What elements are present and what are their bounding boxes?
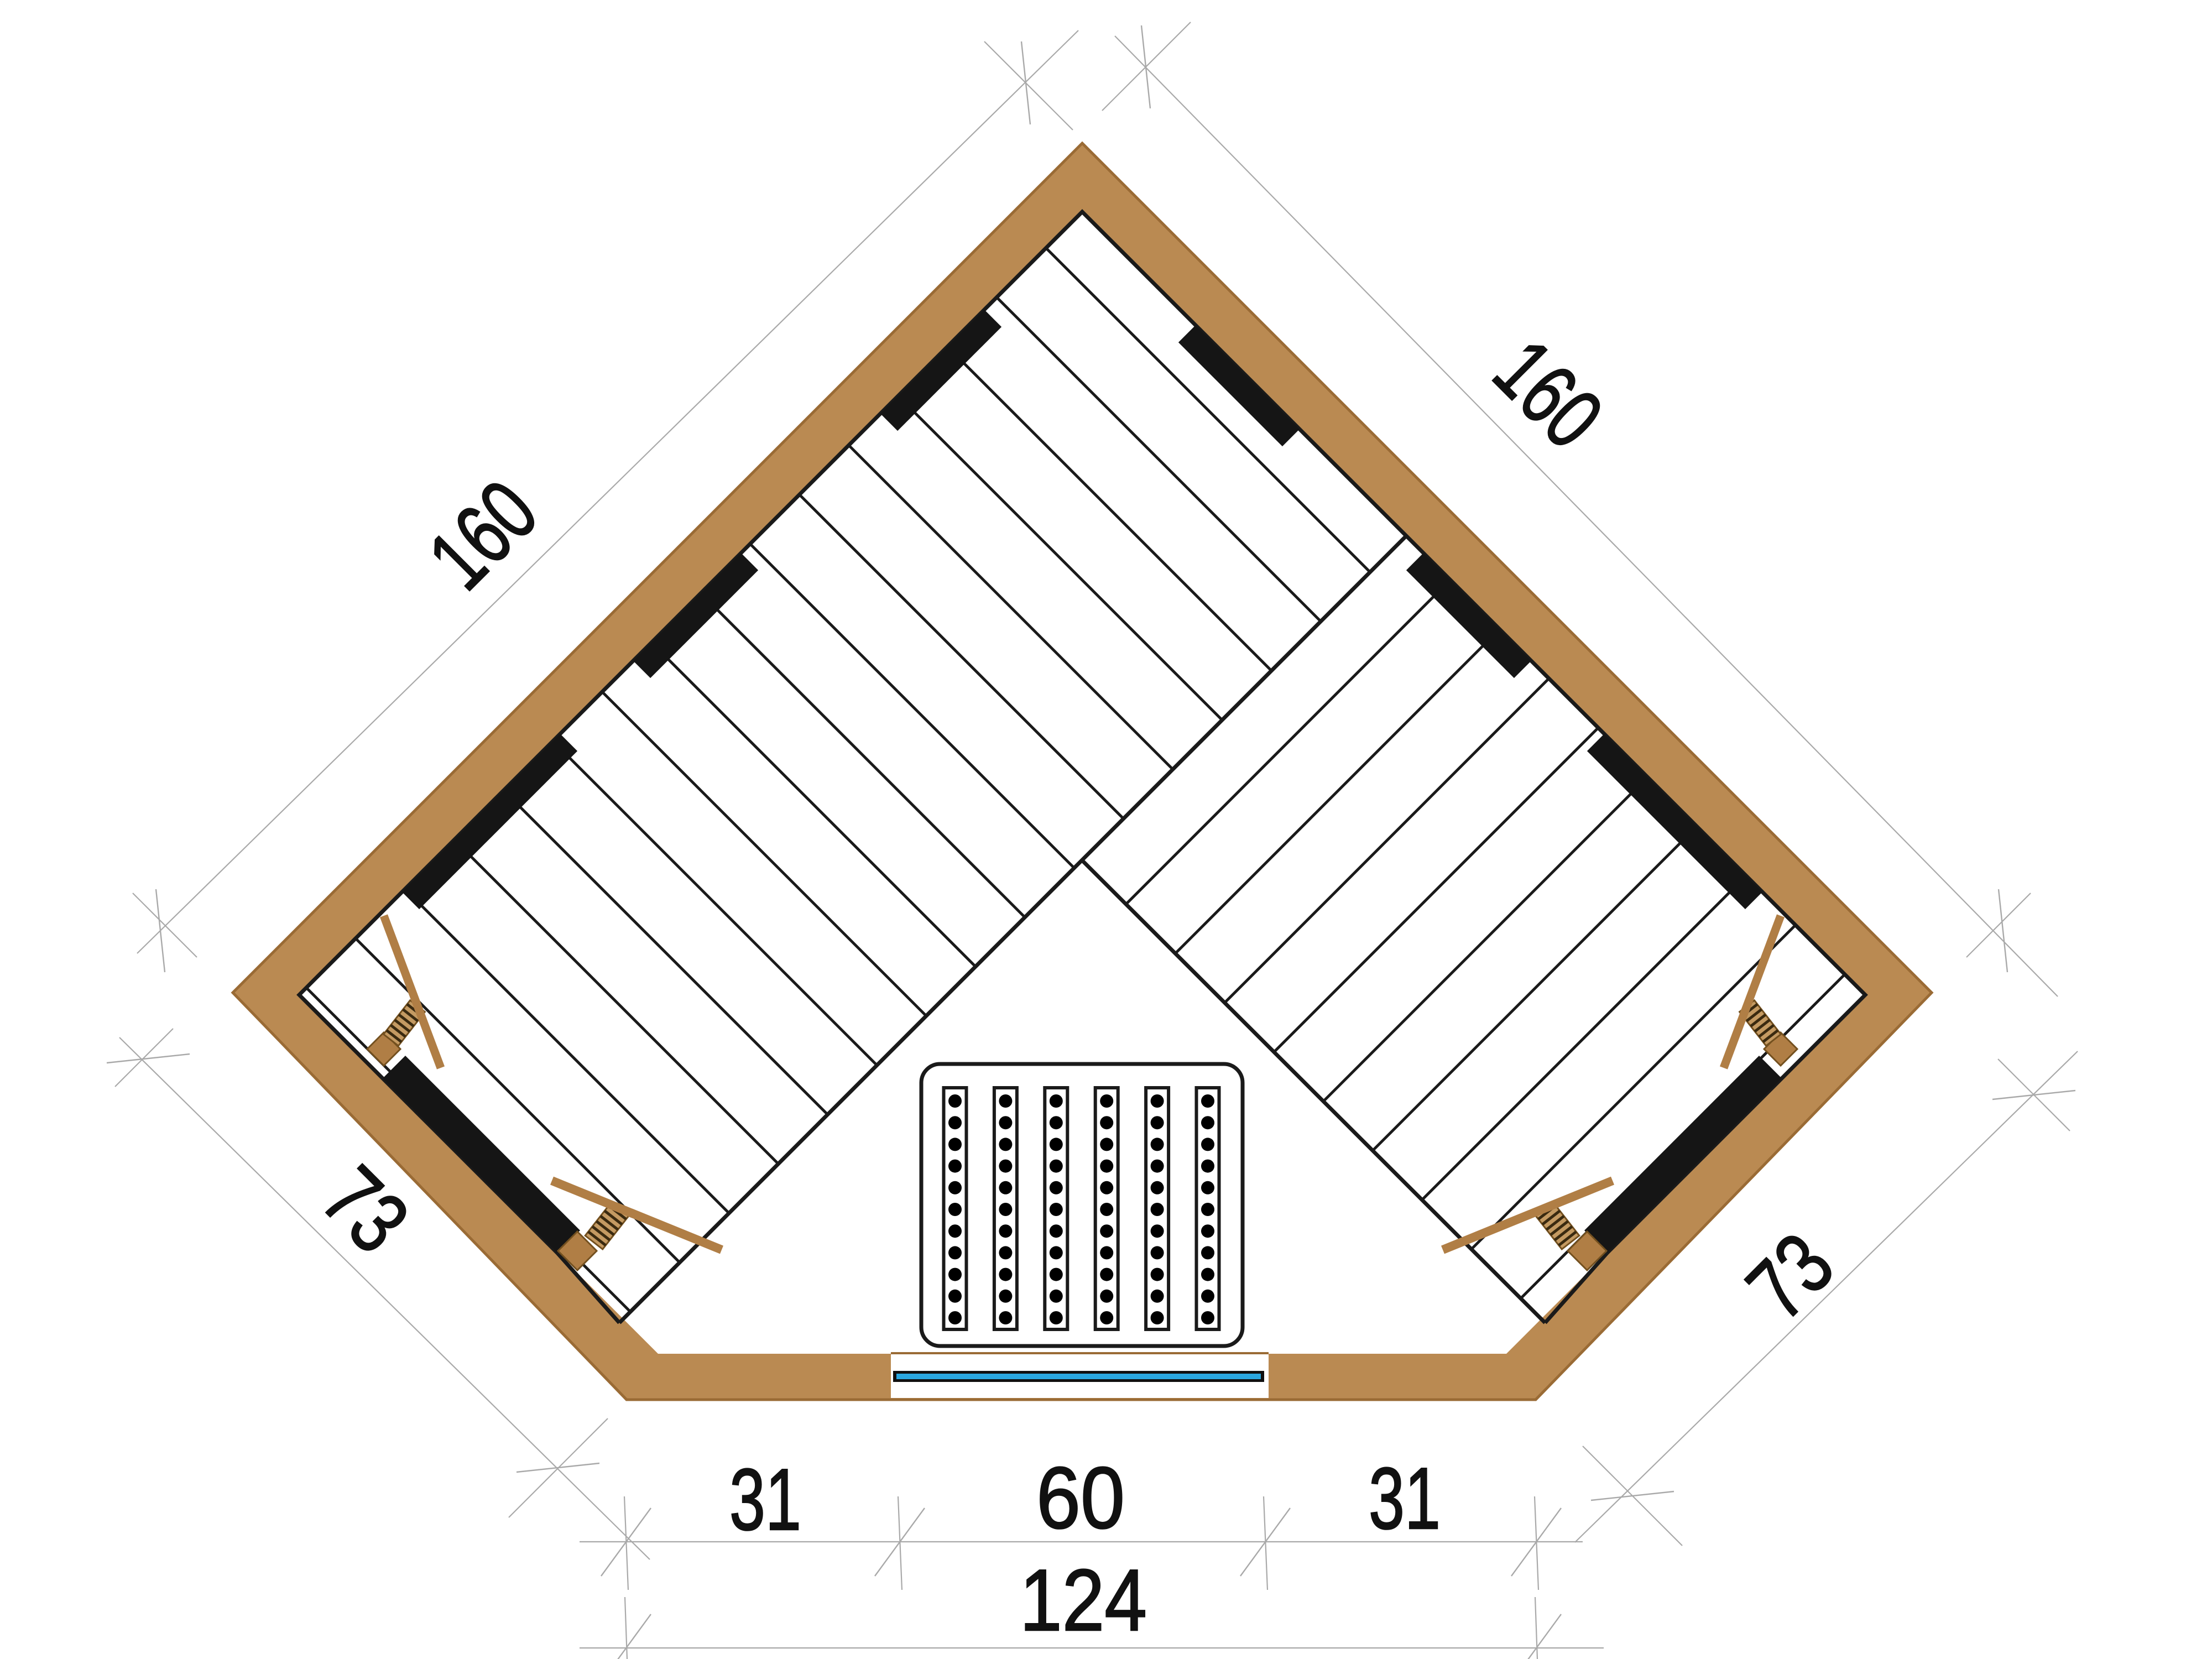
- svg-text:124: 124: [1020, 1552, 1147, 1649]
- svg-text:31: 31: [729, 1451, 801, 1548]
- svg-text:31: 31: [1369, 1450, 1441, 1547]
- svg-text:60: 60: [1036, 1449, 1125, 1547]
